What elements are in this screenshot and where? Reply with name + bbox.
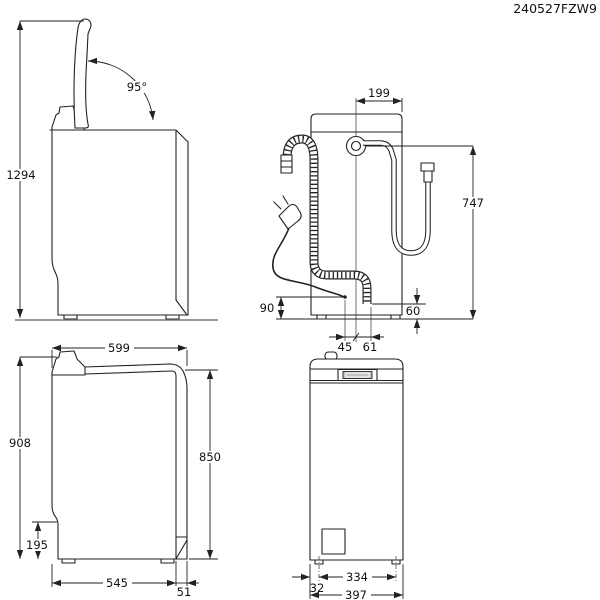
dim-inlet-offset: 199 (356, 86, 402, 112)
dim-total-height: 908 (6, 357, 57, 559)
dim-label-cord-exit-height: 90 (260, 301, 275, 315)
view-side-open: 95° 1294 (6, 19, 218, 320)
view-rear: 199 747 90 60 (260, 86, 488, 354)
foot (62, 559, 75, 563)
foot (64, 315, 77, 319)
power-plug (279, 205, 301, 230)
technical-drawing: 240527FZW9 95° 1294 (0, 0, 600, 600)
dim-label-drain-offset: 61 (363, 340, 378, 354)
dim-rear-gap: 51 (175, 561, 199, 599)
dim-base-depth: 545 (52, 561, 176, 590)
dim-label-body-height: 850 (199, 450, 221, 464)
dim-label-base-depth: 545 (106, 576, 128, 590)
dim-label-inlet-offset: 199 (368, 86, 390, 100)
foot (391, 315, 400, 319)
dim-label-plinth-height: 195 (26, 538, 48, 552)
dim-label-inlet-hose-drop: 747 (462, 196, 484, 210)
drain-hose-end (281, 155, 292, 173)
view-side-closed: 599 908 850 195 (6, 341, 225, 599)
dim-foot-inset: 32 (292, 577, 327, 595)
filter-door (322, 529, 345, 554)
part-number: 240527FZW9 (513, 1, 597, 16)
dimension-drawing-page: 240527FZW9 95° 1294 (0, 0, 600, 600)
dim-feet-distance: 334 (319, 570, 396, 584)
dim-plinth-height: 195 (23, 522, 57, 559)
dim-label-foot-inset: 32 (310, 581, 325, 595)
open-lid (74, 19, 91, 128)
dim-body-height: 850 (185, 370, 225, 559)
dim-label-total-height: 908 (9, 436, 31, 450)
dim-label-rear-gap: 51 (177, 585, 192, 599)
lid-angle-arc: 95° (88, 61, 153, 120)
dim-label-top-depth: 599 (108, 341, 130, 355)
machine-body-side-open (50, 106, 188, 319)
dim-label-width: 397 (345, 588, 367, 600)
control-panel (52, 351, 85, 375)
dim-label-overall-height: 1294 (6, 168, 35, 182)
foot (166, 315, 179, 319)
water-inlet (347, 137, 366, 156)
part-number-label: 240527FZW9 (513, 1, 597, 16)
hose-coupling (424, 171, 432, 182)
machine-body-front (310, 352, 403, 581)
hose-coupling (421, 163, 434, 171)
machine-body-side (52, 351, 187, 563)
view-front: 334 32 397 (292, 352, 403, 600)
dim-label-feet-distance: 334 (346, 570, 368, 584)
foot (317, 315, 326, 319)
dim-label-drain-exit-height: 60 (406, 304, 421, 318)
handle-recess (338, 370, 377, 381)
dim-label-cord-offset: 45 (338, 340, 353, 354)
foot (161, 559, 174, 563)
dim-label-lid-angle: 95° (127, 80, 147, 94)
dim-overall-height: 1294 (6, 21, 84, 318)
